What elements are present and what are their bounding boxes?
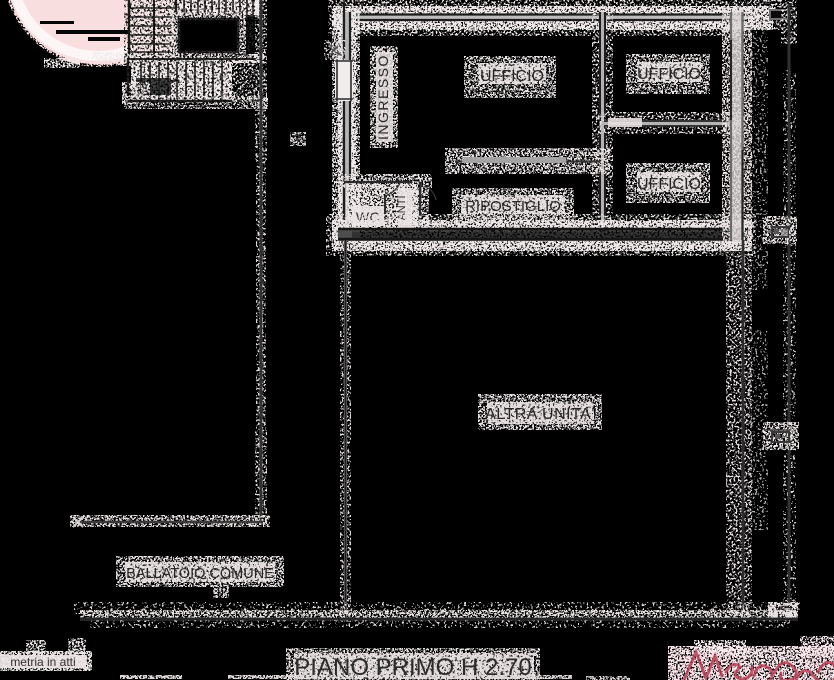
svg-text:metria in atti: metria in atti <box>10 655 75 669</box>
svg-text:BALLATOIO COMUNE: BALLATOIO COMUNE <box>126 566 274 582</box>
svg-text:UFFICIO: UFFICIO <box>480 68 544 85</box>
svg-text:UFFICIO: UFFICIO <box>637 176 701 193</box>
svg-text:ALTRA UNITA': ALTRA UNITA' <box>485 406 595 423</box>
svg-text:UFFICIO: UFFICIO <box>637 66 701 83</box>
svg-text:INGRESSO: INGRESSO <box>375 54 391 140</box>
svg-text:RIPOSTIGLIO: RIPOSTIGLIO <box>465 198 561 215</box>
